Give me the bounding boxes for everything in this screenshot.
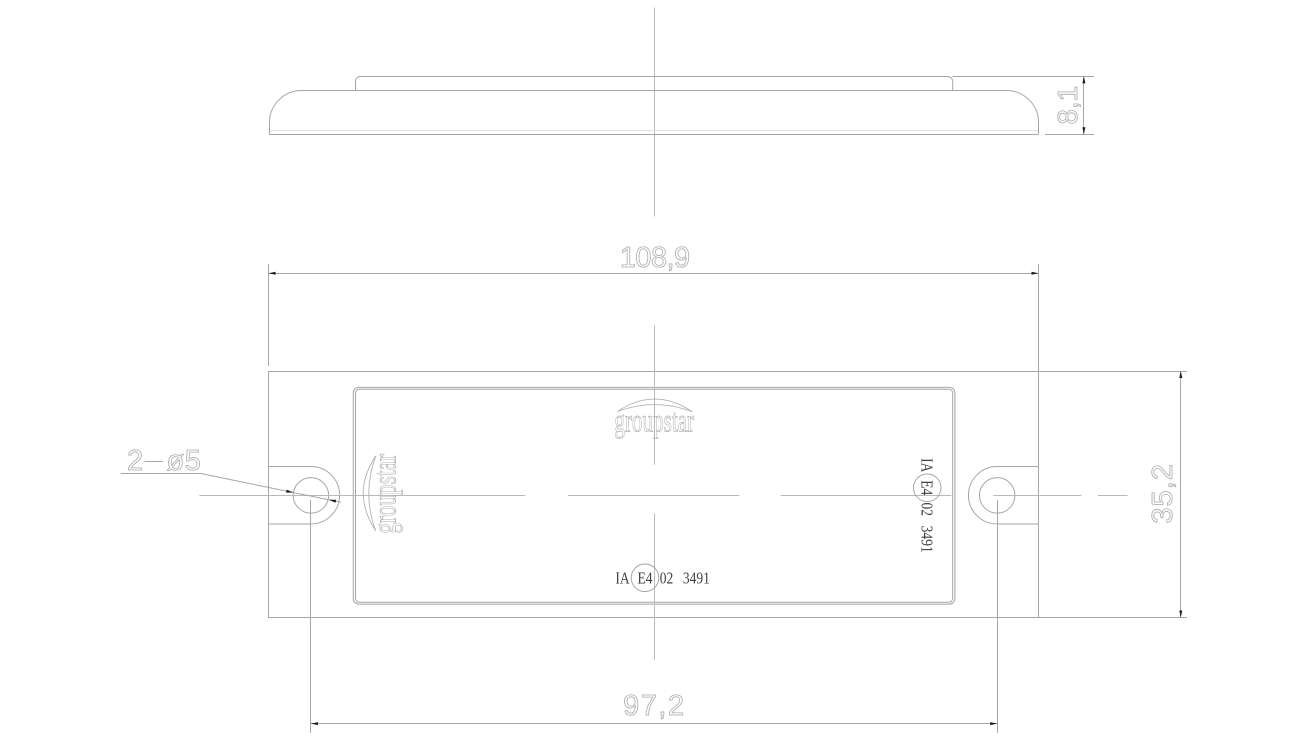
svg-text:108,9: 108,9 [620, 242, 690, 274]
svg-text:2: 2 [127, 445, 143, 477]
svg-text:97,2: 97,2 [623, 690, 685, 722]
svg-text:35,2: 35,2 [1147, 463, 1179, 523]
svg-text:3491: 3491 [683, 571, 710, 588]
svg-text:ø5: ø5 [167, 445, 202, 477]
svg-text:8,1: 8,1 [1052, 86, 1083, 125]
svg-text:02: 02 [660, 571, 674, 588]
svg-text:IA: IA [615, 571, 629, 588]
svg-text:groupstar: groupstar [614, 402, 694, 439]
svg-text:E4: E4 [637, 571, 652, 588]
